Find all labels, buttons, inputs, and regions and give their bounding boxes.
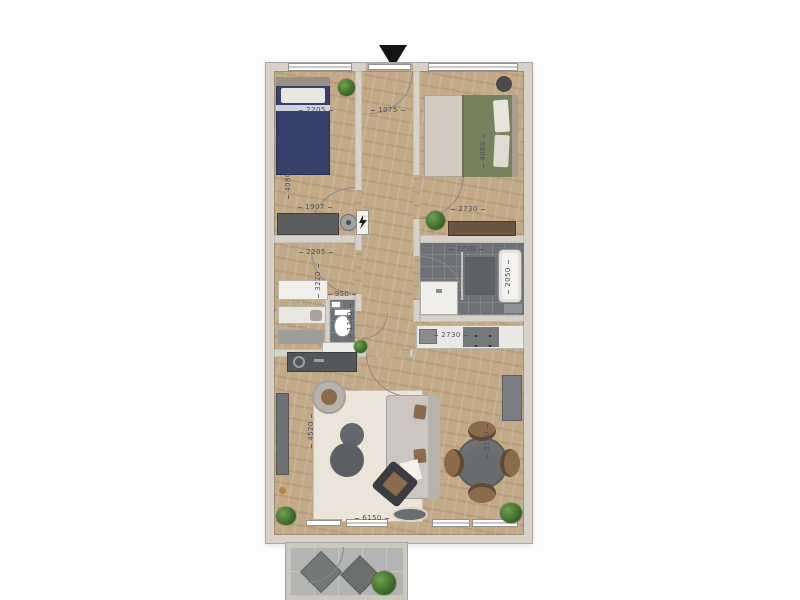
- desk: [277, 213, 339, 235]
- island-sink: [293, 356, 305, 368]
- sofa-backrest: [428, 395, 440, 499]
- wall-bedroom1-bottom: [274, 235, 355, 243]
- dim-toilet-depth: 1300: [345, 301, 355, 341]
- dim-living-depth: 4520: [306, 411, 316, 451]
- dim-toilet-width: 950: [325, 289, 359, 299]
- plant-icon: [338, 79, 355, 96]
- dining-sideboard: [502, 375, 522, 421]
- dim-dining-depth: 3170: [482, 421, 492, 461]
- bed-single-headboard: [276, 77, 330, 86]
- bathroom-mat: [504, 304, 522, 313]
- dining-chair-bottom: [468, 483, 496, 503]
- dim-bedroom2-depth: 4080: [478, 131, 488, 171]
- plant-icon: [276, 507, 296, 525]
- meter-cupboard: [356, 210, 369, 235]
- tv-sideboard: [276, 393, 289, 475]
- dim-bathroom-depth: 2050: [503, 257, 513, 297]
- utility-mat: [278, 330, 324, 344]
- balcony: [286, 543, 407, 600]
- bathroom-vanity: [420, 281, 458, 315]
- bed-double-headboard: [512, 95, 518, 177]
- dining-chair-right: [500, 449, 520, 477]
- dim-utility-width: 2205: [284, 247, 348, 257]
- vanity-faucet: [436, 289, 442, 293]
- dim-bedroom1-desk: 1907: [286, 202, 344, 212]
- bedroom-bench: [448, 221, 516, 236]
- dim-bedroom1-width: 2205: [284, 105, 348, 115]
- meter-icon: [359, 215, 367, 229]
- dining-chair-left: [444, 449, 464, 477]
- shower-screen: [461, 252, 463, 300]
- dim-kitchen-width: 2730: [419, 330, 483, 340]
- floor-plan: 2205 4080 1907 1075 4080 2730 2205 3220 …: [0, 0, 800, 600]
- boiler-center: [346, 220, 351, 225]
- bed-single-pillow: [281, 88, 325, 103]
- sofa-pillow-top: [413, 404, 427, 420]
- dim-utility-depth: 3220: [313, 261, 323, 301]
- window-living-mid: [432, 519, 470, 527]
- balcony-door-leaf: [306, 520, 341, 526]
- coffee-table-large: [330, 443, 364, 477]
- island-faucet: [314, 359, 324, 362]
- plant-icon: [500, 503, 522, 523]
- toilet-basin: [331, 301, 341, 308]
- door-opening-toilet: [355, 311, 362, 339]
- plant-icon: [372, 571, 396, 595]
- bed-double-pillow-bottom: [493, 135, 510, 168]
- entry-door-leaf: [368, 64, 411, 70]
- nightstand: [496, 76, 512, 92]
- dim-bathroom-width: 2730: [434, 244, 498, 254]
- window-bedroom2: [428, 63, 518, 71]
- shower-mat: [464, 256, 496, 296]
- door-opening-bathroom: [413, 256, 420, 300]
- door-opening-utility: [355, 250, 362, 294]
- utility-chair: [310, 310, 322, 321]
- dim-hallway-width: 1075: [362, 105, 414, 115]
- armchair-cushion: [321, 389, 337, 405]
- apartment-outline: 2205 4080 1907 1075 4080 2730 2205 3220 …: [266, 63, 532, 543]
- door-opening-bedroom2: [413, 175, 420, 219]
- wall-bathroom-bottom: [420, 315, 524, 322]
- wall-bedroom2-bottom: [420, 235, 524, 243]
- window-bedroom1: [288, 63, 352, 71]
- floor-lamp: [279, 487, 286, 494]
- bed-double-pillow-top: [493, 100, 510, 133]
- dim-bedroom2-width: 2730: [436, 204, 500, 214]
- dim-living-width: 6150: [340, 513, 404, 523]
- dim-bedroom1-depth: 4080: [283, 162, 293, 202]
